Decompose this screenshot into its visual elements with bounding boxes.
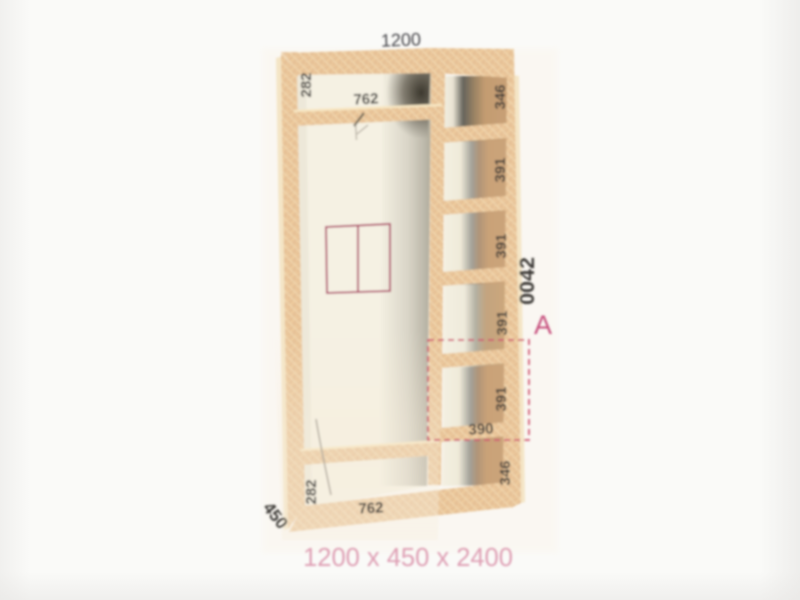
- svg-text:762: 762: [353, 90, 379, 108]
- svg-text:282: 282: [303, 479, 320, 504]
- svg-text:282: 282: [298, 72, 315, 97]
- svg-text:346: 346: [497, 460, 514, 485]
- svg-text:391: 391: [492, 157, 509, 182]
- svg-text:390: 390: [468, 420, 494, 438]
- svg-text:391: 391: [493, 386, 510, 411]
- svg-text:1200 x 450 x 2400: 1200 x 450 x 2400: [303, 544, 513, 572]
- svg-text:391: 391: [494, 310, 511, 335]
- svg-text:762: 762: [358, 499, 384, 517]
- svg-text:0042: 0042: [515, 257, 539, 305]
- svg-text:391: 391: [493, 233, 510, 258]
- svg-text:A: A: [534, 310, 552, 340]
- svg-text:346: 346: [492, 84, 509, 109]
- svg-text:1200: 1200: [381, 29, 422, 50]
